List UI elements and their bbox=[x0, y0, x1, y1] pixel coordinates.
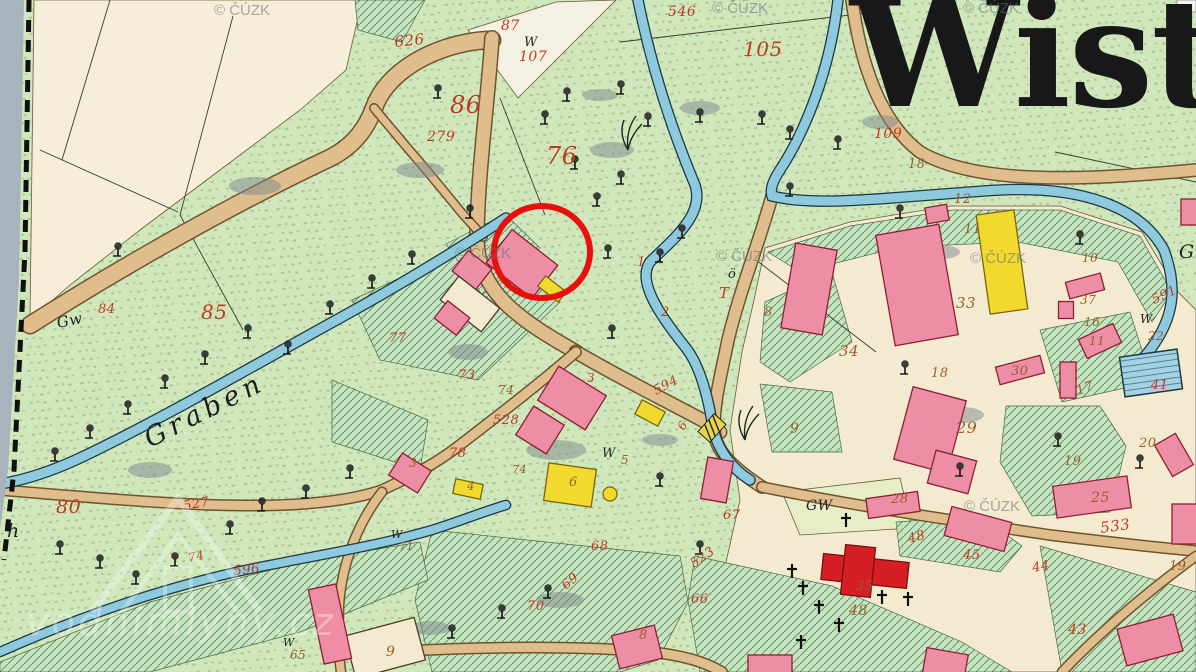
parcel-number: 3 bbox=[409, 456, 417, 470]
cuzk-watermark: © ČÚZK bbox=[455, 245, 511, 262]
parcel-number: W bbox=[1140, 312, 1154, 326]
tree-crown bbox=[434, 84, 442, 92]
tree-crown bbox=[86, 424, 94, 432]
parcel-number: 35 bbox=[856, 579, 874, 594]
cuzk-watermark: © ČÚZK bbox=[716, 248, 772, 265]
parcel-number: 70 bbox=[527, 599, 545, 614]
parcel-number: 5 bbox=[621, 453, 629, 467]
shadow-smudge bbox=[582, 89, 618, 101]
shadow-smudge bbox=[642, 434, 678, 446]
parcel-number: 74 bbox=[512, 463, 527, 476]
parcel-number: 2 bbox=[660, 305, 670, 320]
building-round bbox=[603, 487, 617, 501]
building bbox=[1181, 199, 1196, 225]
parcel-number: 44 bbox=[1030, 558, 1051, 576]
parcel-number: 9 bbox=[386, 644, 395, 660]
cuzk-watermark: © ČÚZK bbox=[963, 0, 1019, 17]
tree-crown bbox=[161, 374, 169, 382]
tree-crown bbox=[758, 110, 766, 118]
tree-crown bbox=[1136, 454, 1144, 462]
building bbox=[1059, 302, 1074, 319]
shadow-smudge bbox=[229, 177, 281, 195]
building bbox=[1060, 362, 1076, 398]
parcel-number: 10 bbox=[1082, 251, 1098, 265]
parcel-number: 11 bbox=[1089, 334, 1105, 348]
parcel-number: 18 bbox=[908, 157, 926, 172]
parcel-number: 71 bbox=[399, 540, 414, 553]
tree-crown bbox=[563, 87, 571, 95]
tree-crown bbox=[124, 400, 132, 408]
parcel-number: 25 bbox=[1090, 490, 1110, 506]
parcel-number: 80 bbox=[56, 496, 81, 518]
map-canvas: 62687W1078627976546105109181211333498öT1… bbox=[0, 0, 1196, 672]
parcel-number: 77 bbox=[389, 331, 407, 346]
tree-crown bbox=[498, 604, 506, 612]
tree-crown bbox=[786, 125, 794, 133]
parcel-number: 66 bbox=[691, 592, 709, 607]
tree-crown bbox=[244, 324, 252, 332]
tree-crown bbox=[302, 484, 310, 492]
parcel-number: 41 bbox=[1150, 378, 1169, 393]
parcel-number: 1 bbox=[637, 255, 646, 270]
tree-crown bbox=[114, 242, 122, 250]
garden-parcel bbox=[760, 384, 842, 452]
building bbox=[925, 204, 949, 224]
parcel-number: 29 bbox=[955, 418, 977, 437]
parcel-number: 18 bbox=[931, 366, 949, 381]
parcel-number: 105 bbox=[743, 37, 783, 61]
parcel-number: 16 bbox=[1084, 315, 1100, 329]
parcel-number: 33 bbox=[956, 294, 976, 312]
tree-crown bbox=[326, 300, 334, 308]
tree-crown bbox=[132, 570, 140, 578]
parcel-number: 22 bbox=[1147, 329, 1164, 343]
parcel-number: 67 bbox=[723, 508, 741, 523]
parcel-number: 78 bbox=[449, 446, 467, 461]
tree-crown bbox=[593, 192, 601, 200]
parcel-number: 34 bbox=[839, 342, 859, 360]
tree-crown bbox=[466, 204, 474, 212]
parcel-number: 546 bbox=[668, 4, 696, 20]
shadow-smudge bbox=[396, 162, 444, 178]
parcel-number: T bbox=[719, 284, 730, 302]
parcel-number: 107 bbox=[519, 49, 547, 65]
tree-crown bbox=[786, 182, 794, 190]
parcel-number: ö bbox=[728, 267, 736, 282]
parcel-number: 76 bbox=[546, 142, 578, 170]
building bbox=[748, 655, 792, 672]
tree-crown bbox=[901, 360, 909, 368]
parcel-number: 43 bbox=[1067, 622, 1087, 638]
tree-crown bbox=[408, 250, 416, 258]
place-name-title: Wistri bbox=[850, 0, 1196, 142]
tree-crown bbox=[644, 112, 652, 120]
tree-crown bbox=[608, 324, 616, 332]
parcel-number: 20 bbox=[1138, 436, 1157, 451]
parcel-number: 30 bbox=[1011, 364, 1029, 379]
tree-crown bbox=[96, 554, 104, 562]
building bbox=[1172, 504, 1196, 544]
parcel-number: 8 bbox=[764, 305, 773, 320]
parcel-number: 19 bbox=[1169, 559, 1187, 574]
tree-crown bbox=[617, 170, 625, 178]
parcel-number: 6 bbox=[569, 475, 578, 490]
shadow-smudge bbox=[128, 462, 172, 478]
cuzk-watermark: © ČÚZK bbox=[214, 2, 270, 19]
parcel-number: 87 bbox=[501, 18, 520, 34]
tree-crown bbox=[346, 464, 354, 472]
tree-crown bbox=[896, 204, 904, 212]
parcel-number: 45 bbox=[962, 548, 981, 563]
tree-crown bbox=[368, 274, 376, 282]
tree-crown bbox=[226, 520, 234, 528]
parcel-number: 528 bbox=[493, 413, 519, 428]
tree-crown bbox=[696, 108, 704, 116]
parcel-number: 65 bbox=[290, 648, 306, 662]
cuzk-watermark: © ČÚZK bbox=[970, 250, 1026, 267]
parcel-number: 28 bbox=[890, 492, 909, 507]
parcel-number: W bbox=[602, 446, 617, 461]
tree-crown bbox=[258, 497, 266, 505]
tree-crown bbox=[696, 540, 704, 548]
parcel-number: 19 bbox=[1064, 454, 1082, 469]
tree-crown bbox=[656, 472, 664, 480]
parcel-number: 37 bbox=[1080, 293, 1096, 307]
tree-crown bbox=[656, 248, 664, 256]
cuzk-watermark: © ČÚZK bbox=[712, 0, 768, 17]
parcel-number: 73 bbox=[458, 368, 476, 383]
parcel-number: 84 bbox=[98, 302, 116, 317]
parcel-number: 9 bbox=[790, 421, 799, 437]
tree-crown bbox=[956, 462, 964, 470]
tree-crown bbox=[678, 224, 686, 232]
parcel-number: 85 bbox=[201, 300, 227, 324]
tree-crown bbox=[604, 244, 612, 252]
parcel-number: 8 bbox=[639, 628, 648, 643]
parcel-number: 86 bbox=[450, 91, 482, 119]
tree-crown bbox=[448, 624, 456, 632]
tree-crown bbox=[56, 540, 64, 548]
tree-crown bbox=[201, 350, 209, 358]
tree-crown bbox=[544, 584, 552, 592]
site-watermark-text: vodnimlyny.cz bbox=[26, 600, 336, 644]
tree-crown bbox=[284, 340, 292, 348]
parcel-number: Gr bbox=[1179, 241, 1196, 263]
parcel-number: 279 bbox=[426, 129, 455, 145]
tree-crown bbox=[1054, 432, 1062, 440]
parcel-number: 74 bbox=[498, 383, 514, 397]
parcel-number: 11 bbox=[964, 222, 982, 237]
parcel-number: GW bbox=[806, 498, 834, 514]
tree-crown bbox=[171, 552, 179, 560]
tree-crown bbox=[1076, 230, 1084, 238]
shadow-smudge bbox=[448, 344, 488, 360]
parcel-number: 3 bbox=[587, 371, 595, 385]
cuzk-watermark: © ČÚZK bbox=[964, 498, 1020, 515]
parcel-number: W bbox=[524, 35, 539, 50]
parcel-number: 68 bbox=[591, 539, 609, 554]
parcel-number: 12 bbox=[954, 192, 972, 207]
tree-crown bbox=[541, 110, 549, 118]
tree-crown bbox=[834, 135, 842, 143]
parcel-number: 4 bbox=[466, 479, 475, 493]
tree-crown bbox=[51, 447, 59, 455]
tree-crown bbox=[617, 80, 625, 88]
parcel-number: 48 bbox=[848, 603, 868, 619]
parcel-number: 626 bbox=[394, 30, 426, 51]
